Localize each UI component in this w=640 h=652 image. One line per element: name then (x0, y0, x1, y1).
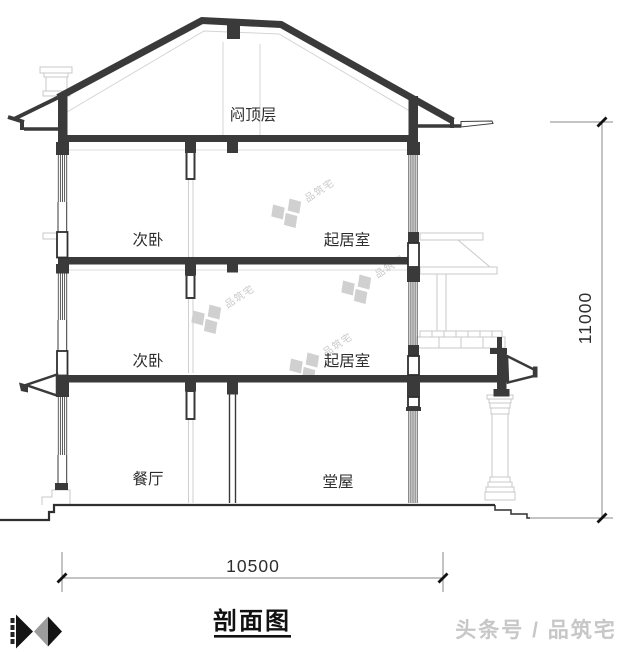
window-section-right (409, 282, 417, 345)
publisher-logo (11, 615, 63, 649)
left-plinth (42, 490, 70, 505)
watermark: 品筑宅 (336, 246, 413, 312)
watermarks: 品筑宅 品筑宅 品筑宅 品筑宅 (186, 170, 413, 390)
room-labels: 闷顶层 次卧 起居室 次卧 起居室 餐厅 堂屋 (132, 106, 370, 491)
height-dimension: 11000 (550, 118, 613, 523)
logo-triangle-icon (16, 615, 33, 649)
logo-diamond-right-icon (48, 617, 62, 647)
partition-wall-1f (230, 394, 236, 503)
right-eave-trim (461, 121, 493, 127)
second-floor-slab (58, 375, 507, 383)
roof-slab (58, 21, 453, 122)
wall-face-lines (58, 320, 67, 351)
watermark: 品筑宅 (266, 170, 343, 236)
porch-eave (507, 356, 534, 383)
watermark-text: 品筑宅 (222, 282, 257, 311)
width-dimension: 10500 (58, 552, 448, 592)
room-label-hall: 堂屋 (322, 473, 353, 491)
logo-vertical-text-marks (11, 618, 15, 644)
left-wall (55, 94, 69, 490)
porch-post-section (490, 337, 538, 397)
door-opening-lines (189, 180, 194, 503)
room-label-bedroom-2f: 次卧 (132, 352, 163, 370)
porch-column (485, 395, 515, 500)
room-label-living-3f: 起居室 (324, 231, 371, 249)
ridge-post (227, 24, 240, 39)
left-ledge (43, 233, 57, 239)
window-section-right (409, 411, 417, 503)
left-canopy (19, 375, 57, 396)
wall-face-lines (58, 455, 67, 483)
section-drawing: 品筑宅 品筑宅 品筑宅 品筑宅 (0, 0, 640, 652)
bay-roof-elevation (420, 233, 497, 331)
watermark-text: 品筑宅 (372, 252, 407, 281)
height-dimension-value: 11000 (575, 292, 595, 344)
room-label-living-2f: 起居室 (324, 352, 371, 370)
watermark-text: 品筑宅 (302, 176, 337, 205)
room-label-attic: 闷顶层 (230, 106, 277, 124)
drawing-title: 剖面图 (213, 607, 291, 635)
porch-entablature (417, 331, 505, 348)
right-wall (406, 96, 421, 503)
attic-floor-slab (58, 135, 418, 142)
window-section-left (58, 155, 66, 202)
porch-gutter (533, 367, 538, 378)
title-underline (214, 635, 291, 638)
window-section-left (58, 274, 66, 321)
ground-line (0, 505, 495, 520)
window-section-right (409, 155, 417, 232)
footer-credit-text: 头条号 / 品筑宅 (455, 618, 617, 642)
background-elevation-layer (40, 31, 515, 505)
window-section-left (58, 397, 66, 455)
drawing-title-block: 剖面图 (213, 607, 291, 638)
logo-diamond-left-icon (34, 617, 48, 647)
watermark: 品筑宅 (186, 276, 263, 342)
architectural-section-page: 品筑宅 品筑宅 品筑宅 品筑宅 (0, 0, 640, 652)
left-eave (14, 98, 58, 120)
third-floor-slab (58, 257, 418, 265)
room-label-dining: 餐厅 (132, 470, 163, 488)
room-label-bedroom-3f: 次卧 (132, 231, 163, 249)
entry-steps (495, 505, 530, 518)
width-dimension-value: 10500 (226, 556, 280, 576)
wall-face-lines (58, 202, 67, 232)
footer-credit: 头条号 / 品筑宅 头条号 / 品筑宅 (455, 618, 618, 643)
